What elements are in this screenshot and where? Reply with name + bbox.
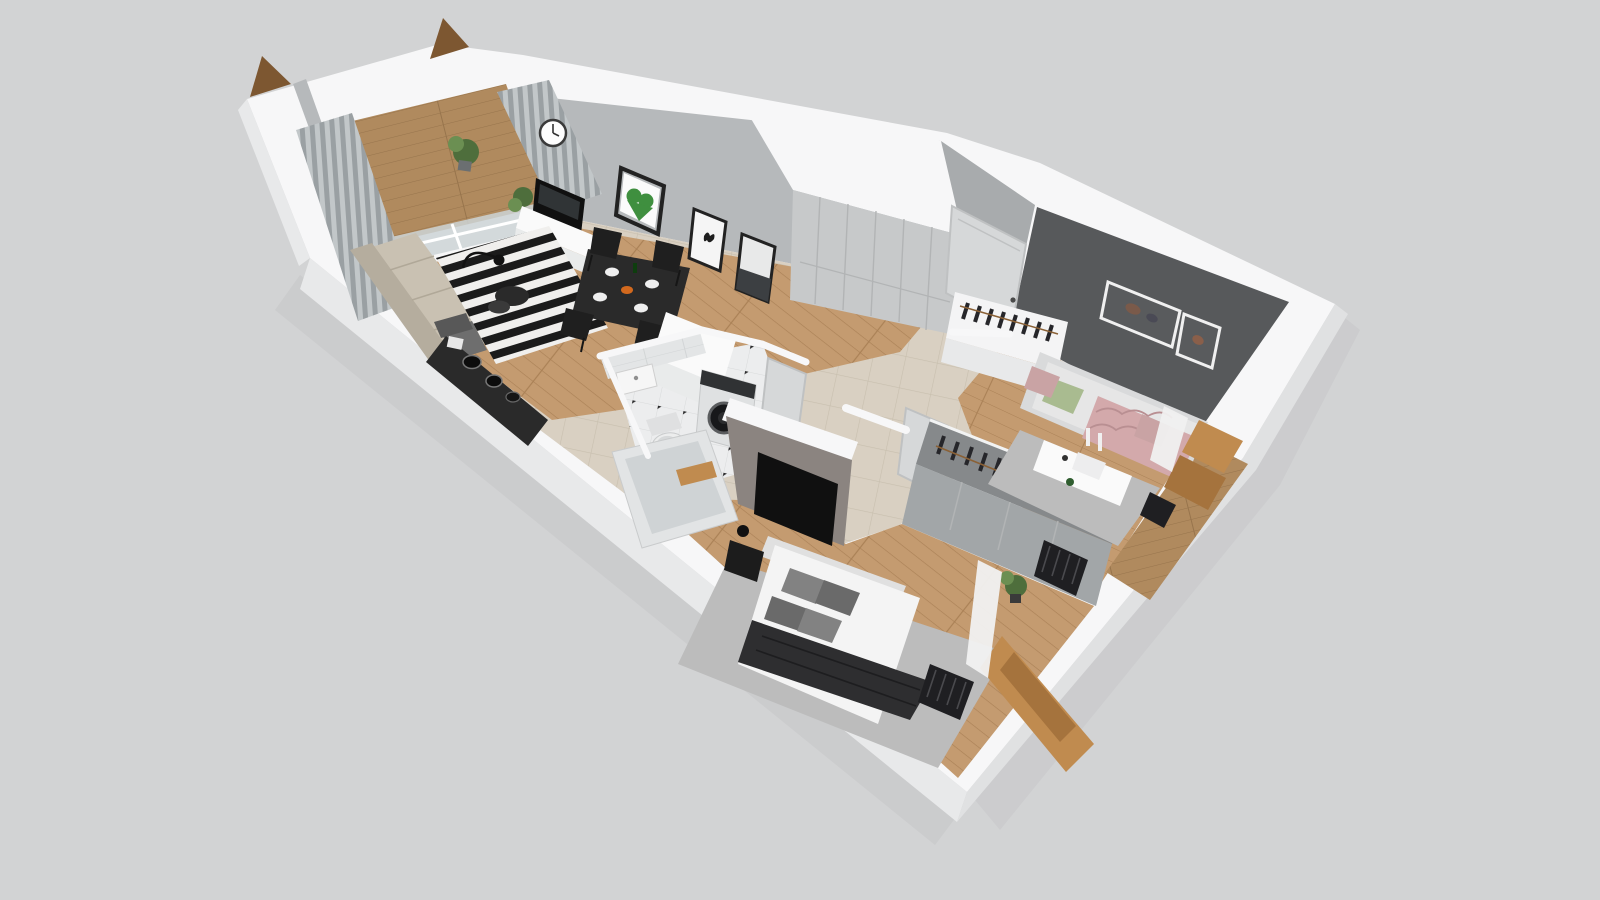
faucet (634, 376, 638, 380)
balcony-plant-leaf (448, 136, 464, 152)
tv-plant-leaf (508, 198, 522, 212)
kids-entry-rim (952, 332, 1010, 334)
desk-chair-post-2 (1098, 433, 1102, 451)
bottle (633, 263, 637, 273)
pot-2 (486, 375, 502, 387)
desk-lamp (1062, 455, 1068, 461)
bedside-lamp (737, 525, 749, 537)
plate-4 (634, 304, 648, 313)
kids-figurine (1066, 478, 1074, 486)
bedroom-plant-pot (1010, 594, 1021, 603)
plate-2 (645, 280, 659, 289)
balcony-plant-pot (458, 160, 472, 172)
plate-1 (605, 268, 619, 277)
floorplan-render (0, 0, 1600, 900)
pot-1 (463, 356, 481, 369)
pot-3 (506, 392, 520, 402)
food-bowl (621, 286, 633, 294)
desk-chair-post-1 (1086, 428, 1090, 446)
bedroom-plant-leaf (1000, 571, 1014, 585)
coffee-table-lower (488, 301, 510, 314)
floor-lamp-head (494, 255, 505, 266)
plate-3 (593, 293, 607, 302)
entry-door-handle (1010, 297, 1015, 302)
floorplan-svg (0, 0, 1600, 900)
